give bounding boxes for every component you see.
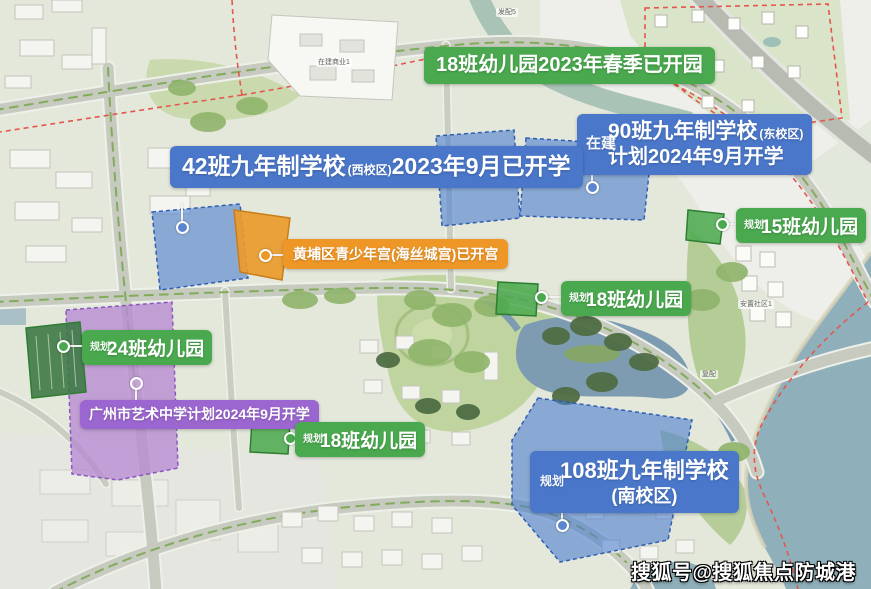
callout-90ban-status-tag: 在建 — [586, 136, 602, 153]
callout-90ban-line2: 计划2024年9月开学 — [608, 145, 784, 170]
callout-kg15-plan-tag: 规划 — [744, 220, 756, 231]
leader-dot-42ban — [176, 221, 189, 234]
callout-kg18-mid-planned: 规划 18班幼儿园 — [561, 281, 691, 316]
leader-dot-108ban — [556, 519, 569, 532]
parcel-18ban-mid — [496, 282, 538, 316]
callout-kg18-bottom-planned: 规划 18班幼儿园 — [295, 422, 425, 457]
parcel-youth-palace — [234, 210, 290, 280]
map-label-community: 安置社区1 — [738, 300, 774, 309]
callout-kg15-label: 15班幼儿园 — [761, 212, 858, 239]
callout-youth-palace-label: 黄埔区青少年宫(海丝城宫)已开宫 — [293, 244, 498, 264]
callout-108ban-plan-tag: 规划 — [540, 475, 553, 488]
callout-90ban-line1: 90班九年制学校 — [608, 119, 757, 145]
leader-dot-15ban — [716, 218, 729, 231]
callout-kg18-opened-line2: 2023年春季已开园 — [538, 52, 703, 79]
callout-art-school-line1: 广州市艺术中学 — [89, 405, 187, 424]
callout-kg18-bottom-label: 18班幼儿园 — [320, 426, 417, 453]
callout-art-school: 广州市艺术中学 计划2024年9月开学 — [80, 400, 319, 429]
leader-dot-art — [130, 377, 143, 390]
callout-kg15-planned: 规划 15班幼儿园 — [736, 208, 866, 243]
callout-kg24-planned: 规划 24班幼儿园 — [82, 330, 212, 365]
callout-42ban-campus-suffix: (西校区) — [348, 163, 392, 179]
callout-kg18-opened-line1: 18班幼儿园 — [436, 52, 538, 79]
map-canvas — [0, 0, 871, 589]
leader-dot-18ban-mid — [535, 291, 548, 304]
callout-42ban-line1: 42班九年制学校 — [182, 152, 346, 182]
parcel-24ban — [26, 322, 86, 398]
leader-line-18ban-mid — [546, 296, 561, 298]
callout-art-school-line2: 计划2024年9月开学 — [187, 405, 310, 424]
callout-108ban-school: 规划 108班九年制学校 (南校区) — [530, 451, 739, 513]
callout-kg24-label: 24班幼儿园 — [107, 334, 204, 361]
map-label-plot5: 发配5 — [496, 8, 518, 17]
callout-42ban-school: 42班九年制学校 (西校区) 2023年9月已开学 — [170, 146, 583, 188]
callout-108ban-line2: (南校区) — [611, 485, 677, 508]
callout-kg24-plan-tag: 规划 — [90, 342, 102, 353]
callout-kg18-bottom-plan-tag: 规划 — [303, 434, 315, 445]
callout-kg18-mid-label: 18班幼儿园 — [586, 285, 683, 312]
parcel-42ban — [152, 204, 248, 290]
callout-90ban-school: 在建 90班九年制学校 (东校区) 计划2024年9月开学 — [577, 114, 812, 175]
callout-90ban-campus-suffix: (东校区) — [759, 127, 803, 142]
leader-dot-90ban — [586, 181, 599, 194]
callout-youth-palace: 黄埔区青少年宫(海丝城宫)已开宫 — [283, 239, 508, 269]
callout-kg18-mid-plan-tag: 规划 — [569, 293, 581, 304]
callout-108ban-line1: 108班九年制学校 — [560, 457, 729, 485]
leader-line-24ban — [68, 345, 82, 347]
watermark: 搜狐号@搜狐焦点防城港站 — [631, 556, 871, 589]
callout-kg18-opened: 18班幼儿园 2023年春季已开园 — [424, 47, 715, 84]
map-label-commercial: 在建商业1 — [316, 58, 352, 67]
leader-line-42ban — [181, 203, 183, 223]
leader-dot-youth — [259, 249, 272, 262]
map-label-fupei: 复配 — [700, 370, 718, 379]
planning-map: 在建商业1 发配5 复配 安置社区1 18班幼儿园 2023年春季已开园 在建 … — [0, 0, 871, 589]
callout-42ban-line2: 2023年9月已开学 — [392, 152, 571, 182]
leader-dot-24ban — [57, 340, 70, 353]
